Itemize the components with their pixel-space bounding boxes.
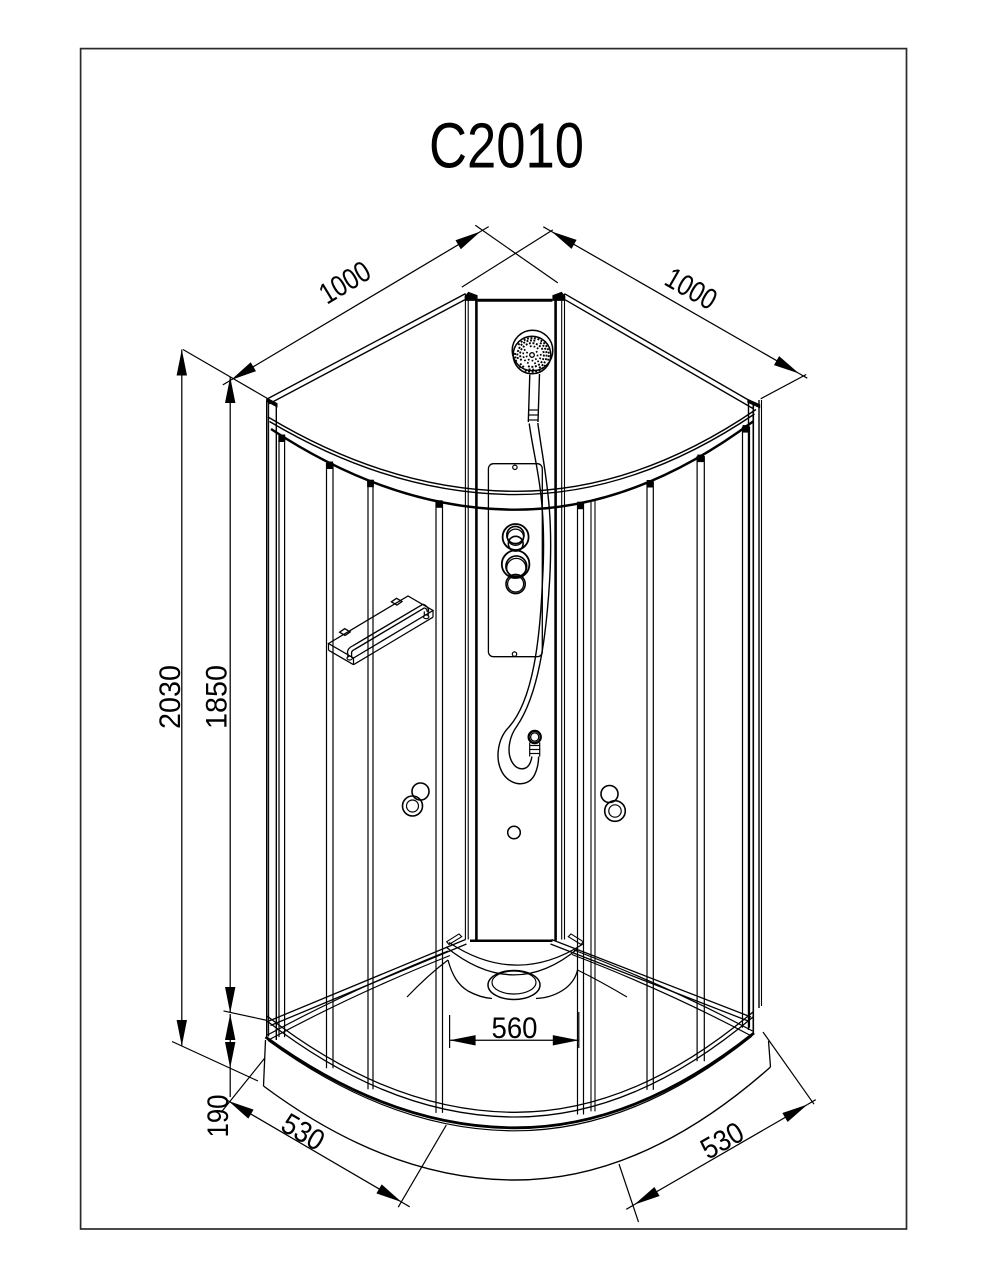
svg-text:560: 560 [492, 1012, 538, 1045]
svg-text:2030: 2030 [154, 665, 187, 729]
svg-text:530: 530 [276, 1107, 331, 1158]
svg-text:1000: 1000 [313, 255, 376, 311]
svg-text:530: 530 [695, 1116, 750, 1167]
svg-text:1000: 1000 [659, 261, 722, 316]
svg-text:1850: 1850 [200, 665, 233, 729]
svg-text:C2010: C2010 [429, 110, 584, 182]
